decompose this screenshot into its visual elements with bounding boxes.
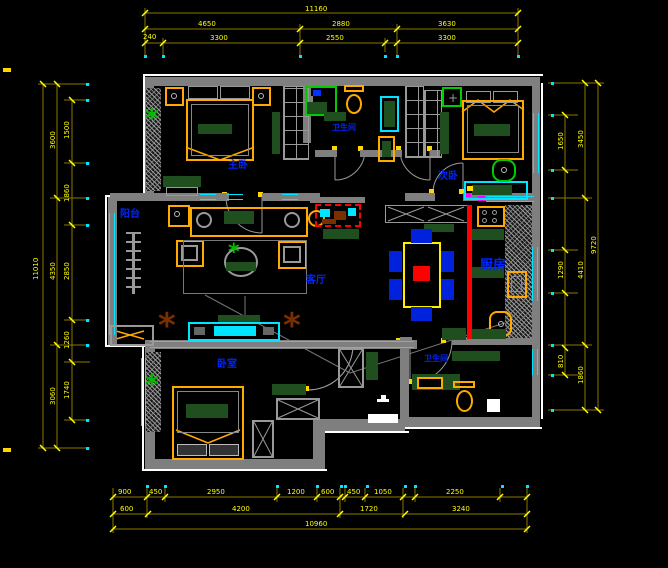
room-label-balcony: 阳台: [120, 210, 140, 220]
dim-label: 4350: [50, 262, 57, 280]
wall-feature-top: [310, 197, 365, 203]
dim-label: 3450: [578, 130, 585, 148]
feature-cabinet-base: [323, 229, 359, 239]
dim-label: 450: [347, 489, 360, 496]
room-label-master-bedroom: 主卧: [228, 161, 248, 171]
room-label-bedroom2: 次卧: [438, 172, 458, 182]
window-bathroom2: [532, 349, 538, 375]
dim-label: 450: [149, 489, 162, 496]
bed3-blanket: [186, 404, 228, 418]
dim-label: 900: [118, 489, 131, 496]
dining-chair-right1: [441, 251, 454, 272]
window-bedroom1-a: [200, 194, 216, 200]
plant-icon: *: [145, 112, 159, 128]
radiator: [126, 232, 141, 294]
decor-stone: [322, 219, 336, 224]
nightstand-right: [252, 87, 271, 106]
dim-label: 600: [120, 506, 133, 513]
room-label-bathroom2: 卫生间: [424, 355, 448, 363]
entry-shelf: [366, 352, 378, 380]
dining-chair-right2: [441, 279, 454, 300]
radiator-bar: [132, 232, 135, 294]
flower-icon: +: [448, 91, 458, 105]
desk-chair: [492, 159, 516, 182]
outline-entry-bottom: [325, 431, 409, 433]
bedroom1-cabinet-base: [166, 187, 198, 196]
window-balcony-band: [150, 341, 414, 348]
dining-chair-top: [411, 229, 432, 243]
dim-label: 9720: [591, 236, 598, 254]
wall-bathroom2-bottom: [400, 417, 540, 427]
plant-icon: *: [283, 316, 301, 336]
bedroom2-shelf: [440, 112, 449, 154]
decor-glass: [348, 208, 356, 216]
dim-label: 10960: [305, 521, 327, 528]
desk-lamp-icon: [467, 186, 473, 191]
outline-right: [541, 83, 543, 419]
dim-label: 4200: [232, 506, 250, 513]
dim-label: 1200: [287, 489, 305, 496]
floor-drain: [487, 399, 500, 412]
bed3-drawer-right: [209, 444, 239, 456]
wall-corridor-bedroom2-left: [405, 193, 435, 201]
outline-bath2-bottom: [405, 427, 542, 429]
wardrobe-bedroom3-h: [276, 398, 320, 420]
floor-plan-canvas: * + * * * * 主卧 卫生间 次卧 阳台 客厅 厨房 卫生间 卧室 11…: [0, 0, 668, 568]
dim-label: 2950: [207, 489, 225, 496]
washbasin-bowl: [384, 101, 395, 127]
bed1-blanket: [198, 124, 232, 134]
dim-label: 1860: [578, 366, 585, 384]
speaker-right: [263, 327, 274, 335]
toilet2-tank: [453, 381, 475, 388]
bed2-blanket: [474, 124, 510, 136]
plant-icon: *: [158, 316, 176, 336]
wall-step-vertical: [313, 419, 325, 469]
room-label-living-room: 客厅: [306, 276, 326, 286]
dim-label: 1500: [64, 121, 71, 139]
dim-label: 1720: [360, 506, 378, 513]
burner-icon: [482, 210, 487, 215]
dim-label: 810: [558, 355, 565, 368]
dim-label: 3600: [50, 131, 57, 149]
dining-centerpiece: [413, 266, 430, 281]
kitchen-counter-c: [472, 329, 506, 339]
dim-label: 1050: [374, 489, 392, 496]
outline-top: [143, 74, 543, 76]
dim-label: 1290: [558, 261, 565, 279]
shower-head-icon: [313, 90, 321, 96]
kitchen-counter-a: [472, 229, 504, 240]
nightstand-left: [165, 87, 184, 106]
sofa-pillow-right: [284, 212, 300, 228]
dim-label: 600: [321, 489, 334, 496]
sofa-pillow-left: [196, 212, 212, 228]
dining-chair-left1: [389, 251, 402, 272]
bed1-pillow-left: [188, 86, 218, 99]
window-bedroom1-b: [227, 194, 243, 200]
window-bedroom1-c: [282, 194, 298, 200]
dim-label: 240: [143, 34, 156, 41]
wall-corridor-top-a: [315, 150, 337, 157]
dining-sideboard: [385, 205, 469, 223]
entry-glyph-dot: [381, 395, 386, 400]
dim-label: 1260: [64, 331, 71, 349]
tv-screen: [214, 326, 256, 336]
window-kitchen: [532, 247, 538, 301]
room-label-kitchen: 厨房: [480, 259, 506, 272]
entry-column: [338, 348, 364, 388]
dim-label: 2880: [332, 21, 350, 28]
wall-top: [145, 77, 540, 86]
room-label-bathroom1: 卫生间: [332, 124, 356, 132]
vanity-sink: [417, 377, 443, 389]
burner-icon: [492, 210, 497, 215]
decor-icon: [174, 211, 180, 217]
planter-box: +: [442, 87, 462, 107]
coffee-table-tray: [226, 262, 256, 271]
plant-icon: *: [145, 378, 159, 394]
window-bedroom2: [533, 113, 539, 173]
wall-bathroom2-left: [400, 345, 409, 419]
lamp-icon: [258, 93, 264, 99]
speaker-left: [194, 327, 205, 335]
dim-label: 3630: [438, 21, 456, 28]
toilet1-tank: [344, 85, 364, 92]
dining-chair-left2: [389, 279, 402, 300]
plant-icon: *: [228, 246, 240, 259]
burner-icon: [482, 218, 487, 223]
desk-top: [472, 185, 512, 195]
sink-basin: [511, 276, 522, 292]
bed3-drawer-left: [177, 444, 207, 456]
dim-label: 2250: [446, 489, 464, 496]
washer: [442, 328, 466, 340]
dim-label: 4410: [578, 261, 585, 279]
outline-bay-left: [105, 195, 107, 347]
kitchen-sink: [507, 271, 527, 298]
wardrobe-bedroom3-v: [252, 420, 274, 458]
toilet2-bowl: [456, 390, 473, 412]
dim-label: 11010: [33, 258, 40, 280]
dim-label: 1650: [558, 132, 565, 150]
bed1-pillow-right: [220, 86, 250, 99]
bath2-shelf: [452, 351, 500, 361]
appliance-dial: [498, 321, 504, 327]
dim-label: 3060: [50, 387, 57, 405]
feature-cabinet: [315, 204, 361, 227]
bath1-shelf: [324, 112, 346, 121]
dim-label: 1860: [64, 184, 71, 202]
dim-label: 3240: [452, 506, 470, 513]
chair-cushion: [501, 167, 507, 173]
dim-label: 1740: [64, 381, 71, 399]
desk-accessory: [466, 193, 471, 197]
water-heater-core: [382, 141, 391, 157]
entry-marker: [368, 414, 398, 423]
dim-label: 11160: [305, 6, 327, 13]
bedroom3-shelf: [272, 384, 306, 395]
dim-label: 2550: [326, 35, 344, 42]
shoe-cabinet: [110, 325, 154, 346]
toilet1-bowl: [346, 94, 362, 114]
dim-label: 4650: [198, 21, 216, 28]
bedroom1-cabinet: [163, 176, 201, 187]
lamp-icon: [171, 93, 177, 99]
side-table: [168, 205, 190, 227]
burner-icon: [492, 218, 497, 223]
decor-glass: [320, 209, 330, 217]
dim-label: 2850: [64, 262, 71, 280]
sofa-cushion: [224, 211, 254, 224]
room-label-bedroom3: 卧室: [217, 360, 237, 370]
bedroom1-shelf: [272, 112, 280, 154]
dining-chair-bottom: [411, 307, 432, 321]
outline-bottom-left: [142, 469, 327, 471]
dim-label: 3300: [210, 35, 228, 42]
dim-label: 3300: [438, 35, 456, 42]
wall-bedroom3-bottom: [145, 459, 325, 469]
stove: [477, 206, 505, 227]
window-balcony-bay: [109, 213, 115, 335]
bath1-tall-cabinet: [405, 86, 424, 158]
